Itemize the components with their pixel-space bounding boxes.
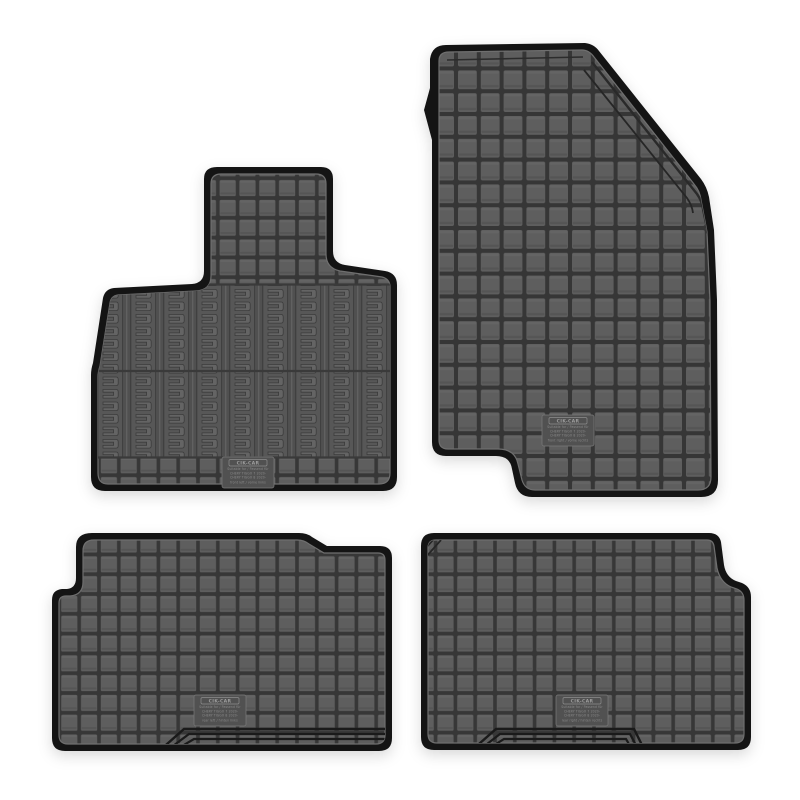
label-brand: CIK-CAR [557,419,580,425]
label-position: rear left / hinten links [202,719,238,723]
embossed-label-rear-left: CIK-CAR Suitable for / Passend für CHERY… [194,695,246,726]
mat-front-left: CIK-CAR Suitable for / Passend für CHERY… [91,167,397,491]
mat-rear-left: CIK-CAR Suitable for / Passend für CHERY… [52,533,392,752]
label-model-2: CHERY TIGGO 8 2020- [564,714,600,718]
label-position: front right / vorne rechts [548,439,589,443]
product-photo: CIK-CAR Suitable for / Passend für CHERY… [0,0,800,800]
label-brand: CIK-CAR [571,699,594,705]
label-brand: CIK-CAR [237,461,260,467]
embossed-label-front-right: CIK-CAR Suitable for / Passend für CHERY… [542,415,594,446]
label-model-2: CHERY TIGGO 8 2020- [230,476,266,480]
label-position: front left / vorne links [230,481,266,485]
label-position: rear right / hinten rechts [562,719,603,723]
heel-pad-zone [95,284,395,458]
mat-front-right: CIK-CAR Suitable for / Passend für CHERY… [424,43,718,497]
label-model-2: CHERY TIGGO 8 2020- [202,714,238,718]
label-model-2: CHERY TIGGO 8 2020- [550,434,586,438]
label-brand: CIK-CAR [209,699,232,705]
mat-rear-right: CIK-CAR Suitable for / Passend für CHERY… [421,533,751,751]
floor-mat-set-image: CIK-CAR Suitable for / Passend für CHERY… [0,0,800,800]
embossed-label-front-left: CIK-CAR Suitable for / Passend für CHERY… [222,457,274,488]
embossed-label-rear-right: CIK-CAR Suitable for / Passend für CHERY… [556,695,608,726]
